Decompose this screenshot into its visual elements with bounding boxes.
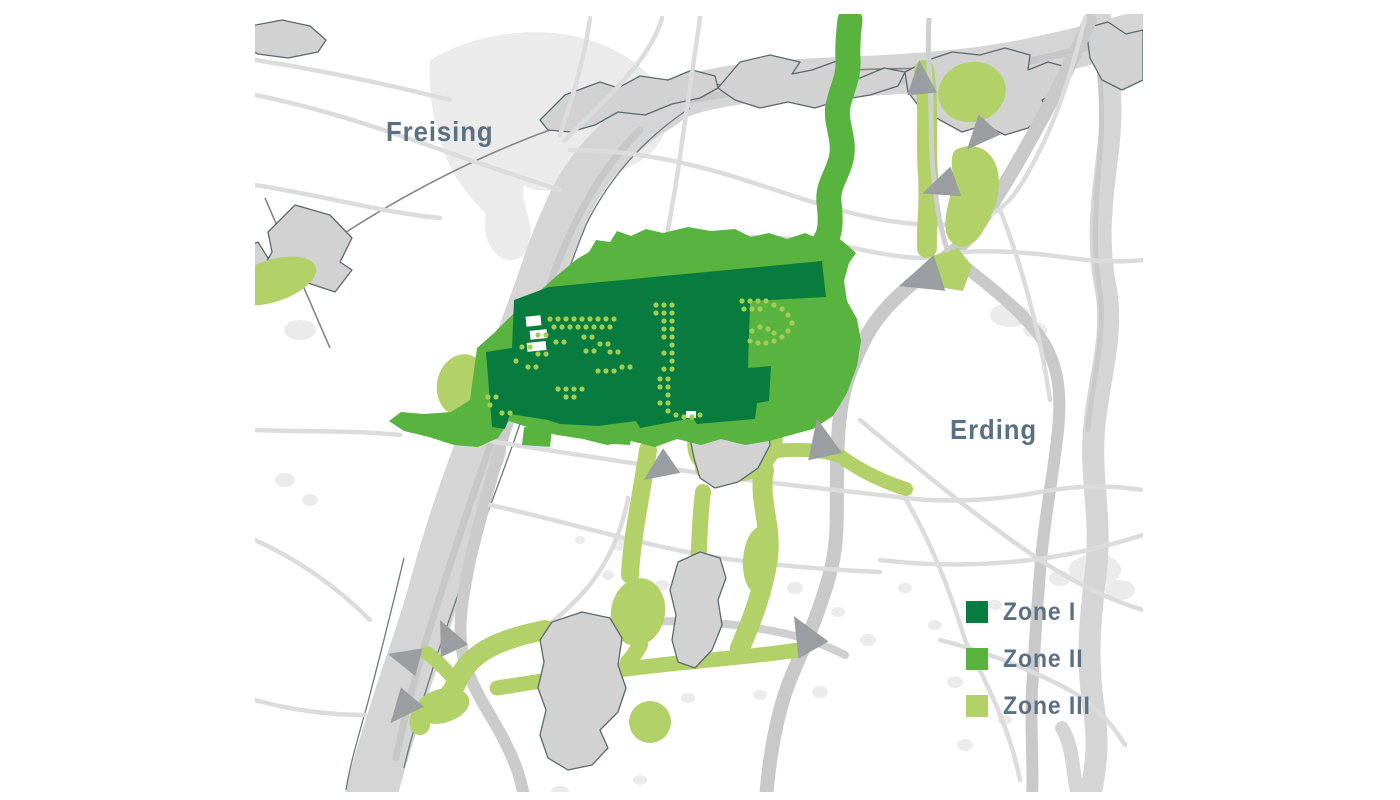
- zone-map: [0, 0, 1400, 800]
- map-canvas: [0, 0, 1400, 800]
- right-river-band: [1062, 18, 1110, 798]
- village-hallbergmoos: [538, 612, 626, 770]
